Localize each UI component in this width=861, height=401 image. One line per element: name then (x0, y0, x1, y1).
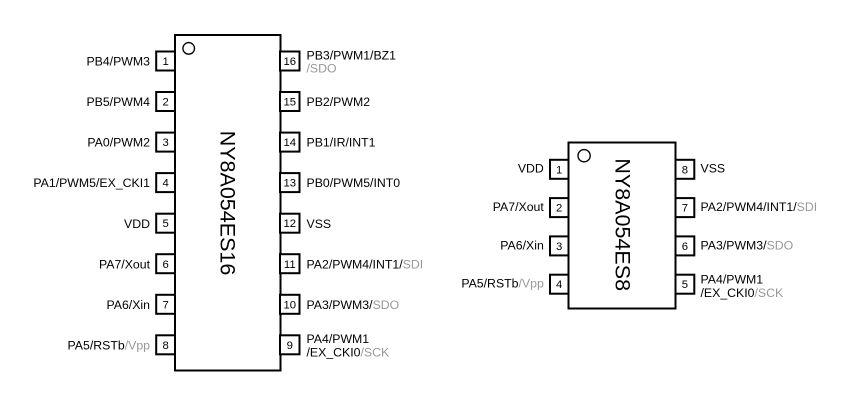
svg-text:PA7/Xout: PA7/Xout (493, 200, 545, 214)
svg-text:7: 7 (162, 299, 168, 311)
svg-text:4: 4 (162, 178, 168, 190)
svg-text:3: 3 (162, 137, 168, 149)
svg-text:PA6/Xin: PA6/Xin (106, 298, 150, 312)
svg-text:15: 15 (284, 97, 297, 109)
svg-text:PA5/RSTb/Vpp: PA5/RSTb/Vpp (68, 338, 151, 352)
svg-text:VSS: VSS (307, 217, 332, 231)
svg-text:NY8A054ES8: NY8A054ES8 (610, 158, 634, 291)
svg-text:5: 5 (162, 218, 168, 230)
svg-text:PB4/PWM3: PB4/PWM3 (86, 55, 150, 69)
svg-text:4: 4 (556, 279, 562, 291)
svg-text:PB3/PWM1/BZ1: PB3/PWM1/BZ1 (307, 48, 397, 62)
svg-text:3: 3 (556, 241, 562, 253)
svg-text:PB1/IR/INT1: PB1/IR/INT1 (307, 136, 376, 150)
svg-text:VDD: VDD (124, 217, 150, 231)
svg-text:6: 6 (162, 259, 168, 271)
svg-text:PB5/PWM4: PB5/PWM4 (86, 95, 150, 109)
svg-text:11: 11 (284, 259, 296, 271)
svg-text:9: 9 (287, 340, 293, 352)
svg-text:8: 8 (162, 340, 168, 352)
svg-text:PB0/PWM5/INT0: PB0/PWM5/INT0 (307, 176, 401, 190)
svg-text:PA2/PWM4/INT1/SDI: PA2/PWM4/INT1/SDI (701, 200, 818, 214)
svg-text:PA3/PWM3/SDO: PA3/PWM3/SDO (307, 298, 400, 312)
svg-text:5: 5 (682, 279, 688, 291)
svg-text:VDD: VDD (518, 162, 544, 176)
svg-text:1: 1 (162, 56, 168, 68)
svg-text:8: 8 (682, 164, 688, 176)
svg-text:2: 2 (556, 203, 562, 215)
svg-text:6: 6 (682, 241, 688, 253)
svg-text:PA6/Xin: PA6/Xin (500, 238, 544, 252)
svg-text:VSS: VSS (701, 162, 726, 176)
svg-text:/EX_CKI0/SCK: /EX_CKI0/SCK (701, 286, 784, 300)
svg-text:PA1/PWM5/EX_CKI1: PA1/PWM5/EX_CKI1 (33, 176, 150, 190)
svg-text:PA4/PWM1: PA4/PWM1 (701, 272, 764, 286)
svg-text:NY8A054ES16: NY8A054ES16 (216, 131, 240, 276)
svg-text:/EX_CKI0/SCK: /EX_CKI0/SCK (307, 345, 390, 359)
svg-text:1: 1 (556, 164, 562, 176)
svg-text:10: 10 (284, 299, 297, 311)
svg-text:12: 12 (284, 218, 297, 230)
svg-text:/SDO: /SDO (307, 62, 337, 76)
svg-text:13: 13 (284, 178, 297, 190)
svg-text:16: 16 (284, 56, 297, 68)
svg-text:2: 2 (162, 97, 168, 109)
svg-text:PB2/PWM2: PB2/PWM2 (307, 95, 371, 109)
svg-text:14: 14 (284, 137, 297, 149)
svg-text:7: 7 (682, 203, 688, 215)
svg-text:PA7/Xout: PA7/Xout (99, 257, 151, 271)
svg-text:PA5/RSTb/Vpp: PA5/RSTb/Vpp (461, 277, 544, 291)
svg-text:PA3/PWM3/SDO: PA3/PWM3/SDO (701, 238, 794, 252)
svg-text:PA0/PWM2: PA0/PWM2 (87, 136, 150, 150)
svg-text:PA4/PWM1: PA4/PWM1 (307, 332, 370, 346)
svg-text:PA2/PWM4/INT1/SDI: PA2/PWM4/INT1/SDI (307, 257, 424, 271)
